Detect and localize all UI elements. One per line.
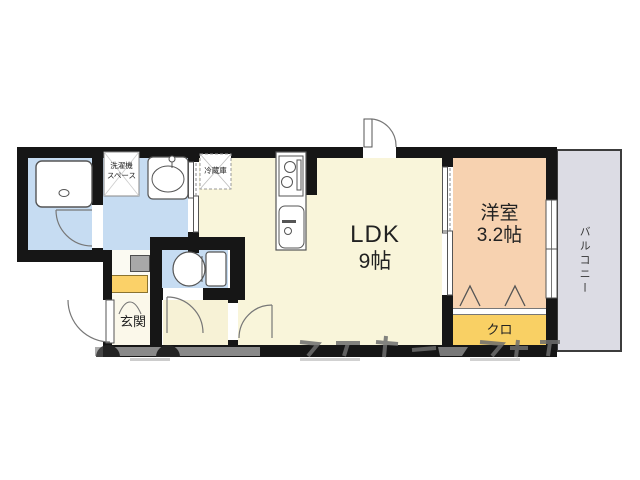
closet-track [453, 308, 546, 315]
floor-plan: LDK 9帖 洋室 3.2帖 バルコニー クロ 玄関 冷蔵庫 洗濯機 スペース [0, 0, 640, 480]
shoe-cabinet [110, 275, 148, 293]
wall [442, 147, 453, 167]
label-western-room-size: 3.2帖 [454, 226, 545, 247]
wall [17, 147, 28, 262]
label-washer-line2: スペース [104, 172, 139, 180]
label-entrance: 玄関 [112, 315, 154, 329]
wall [92, 248, 103, 262]
wall [442, 295, 453, 357]
wall [188, 147, 199, 162]
label-washer-line1: 洗濯機 [104, 162, 139, 170]
wall [103, 250, 112, 300]
wall [306, 147, 317, 195]
ldk-floor [238, 295, 442, 345]
door-entrance [68, 300, 114, 343]
label-western-room: 洋室 [454, 204, 545, 225]
wall [103, 345, 557, 357]
label-ldk: LDK [330, 222, 420, 248]
toilet-floor [162, 247, 228, 290]
pipe-shaft [130, 255, 150, 272]
label-ldk-size: 9帖 [330, 250, 420, 273]
bathroom-floor [28, 158, 92, 250]
sliding-door-western-room [442, 167, 453, 295]
wall [228, 295, 238, 345]
label-balcony: バルコニー [578, 226, 590, 296]
wall [546, 298, 557, 357]
wall [17, 250, 103, 262]
hallway-floor [163, 295, 228, 345]
wall [150, 288, 163, 300]
wall [546, 147, 557, 200]
sliding-door-washroom [188, 162, 199, 232]
label-closet: クロ [453, 323, 546, 337]
wall [92, 147, 103, 205]
wall [203, 288, 245, 300]
label-refrigerator: 冷蔵庫 [200, 167, 231, 175]
